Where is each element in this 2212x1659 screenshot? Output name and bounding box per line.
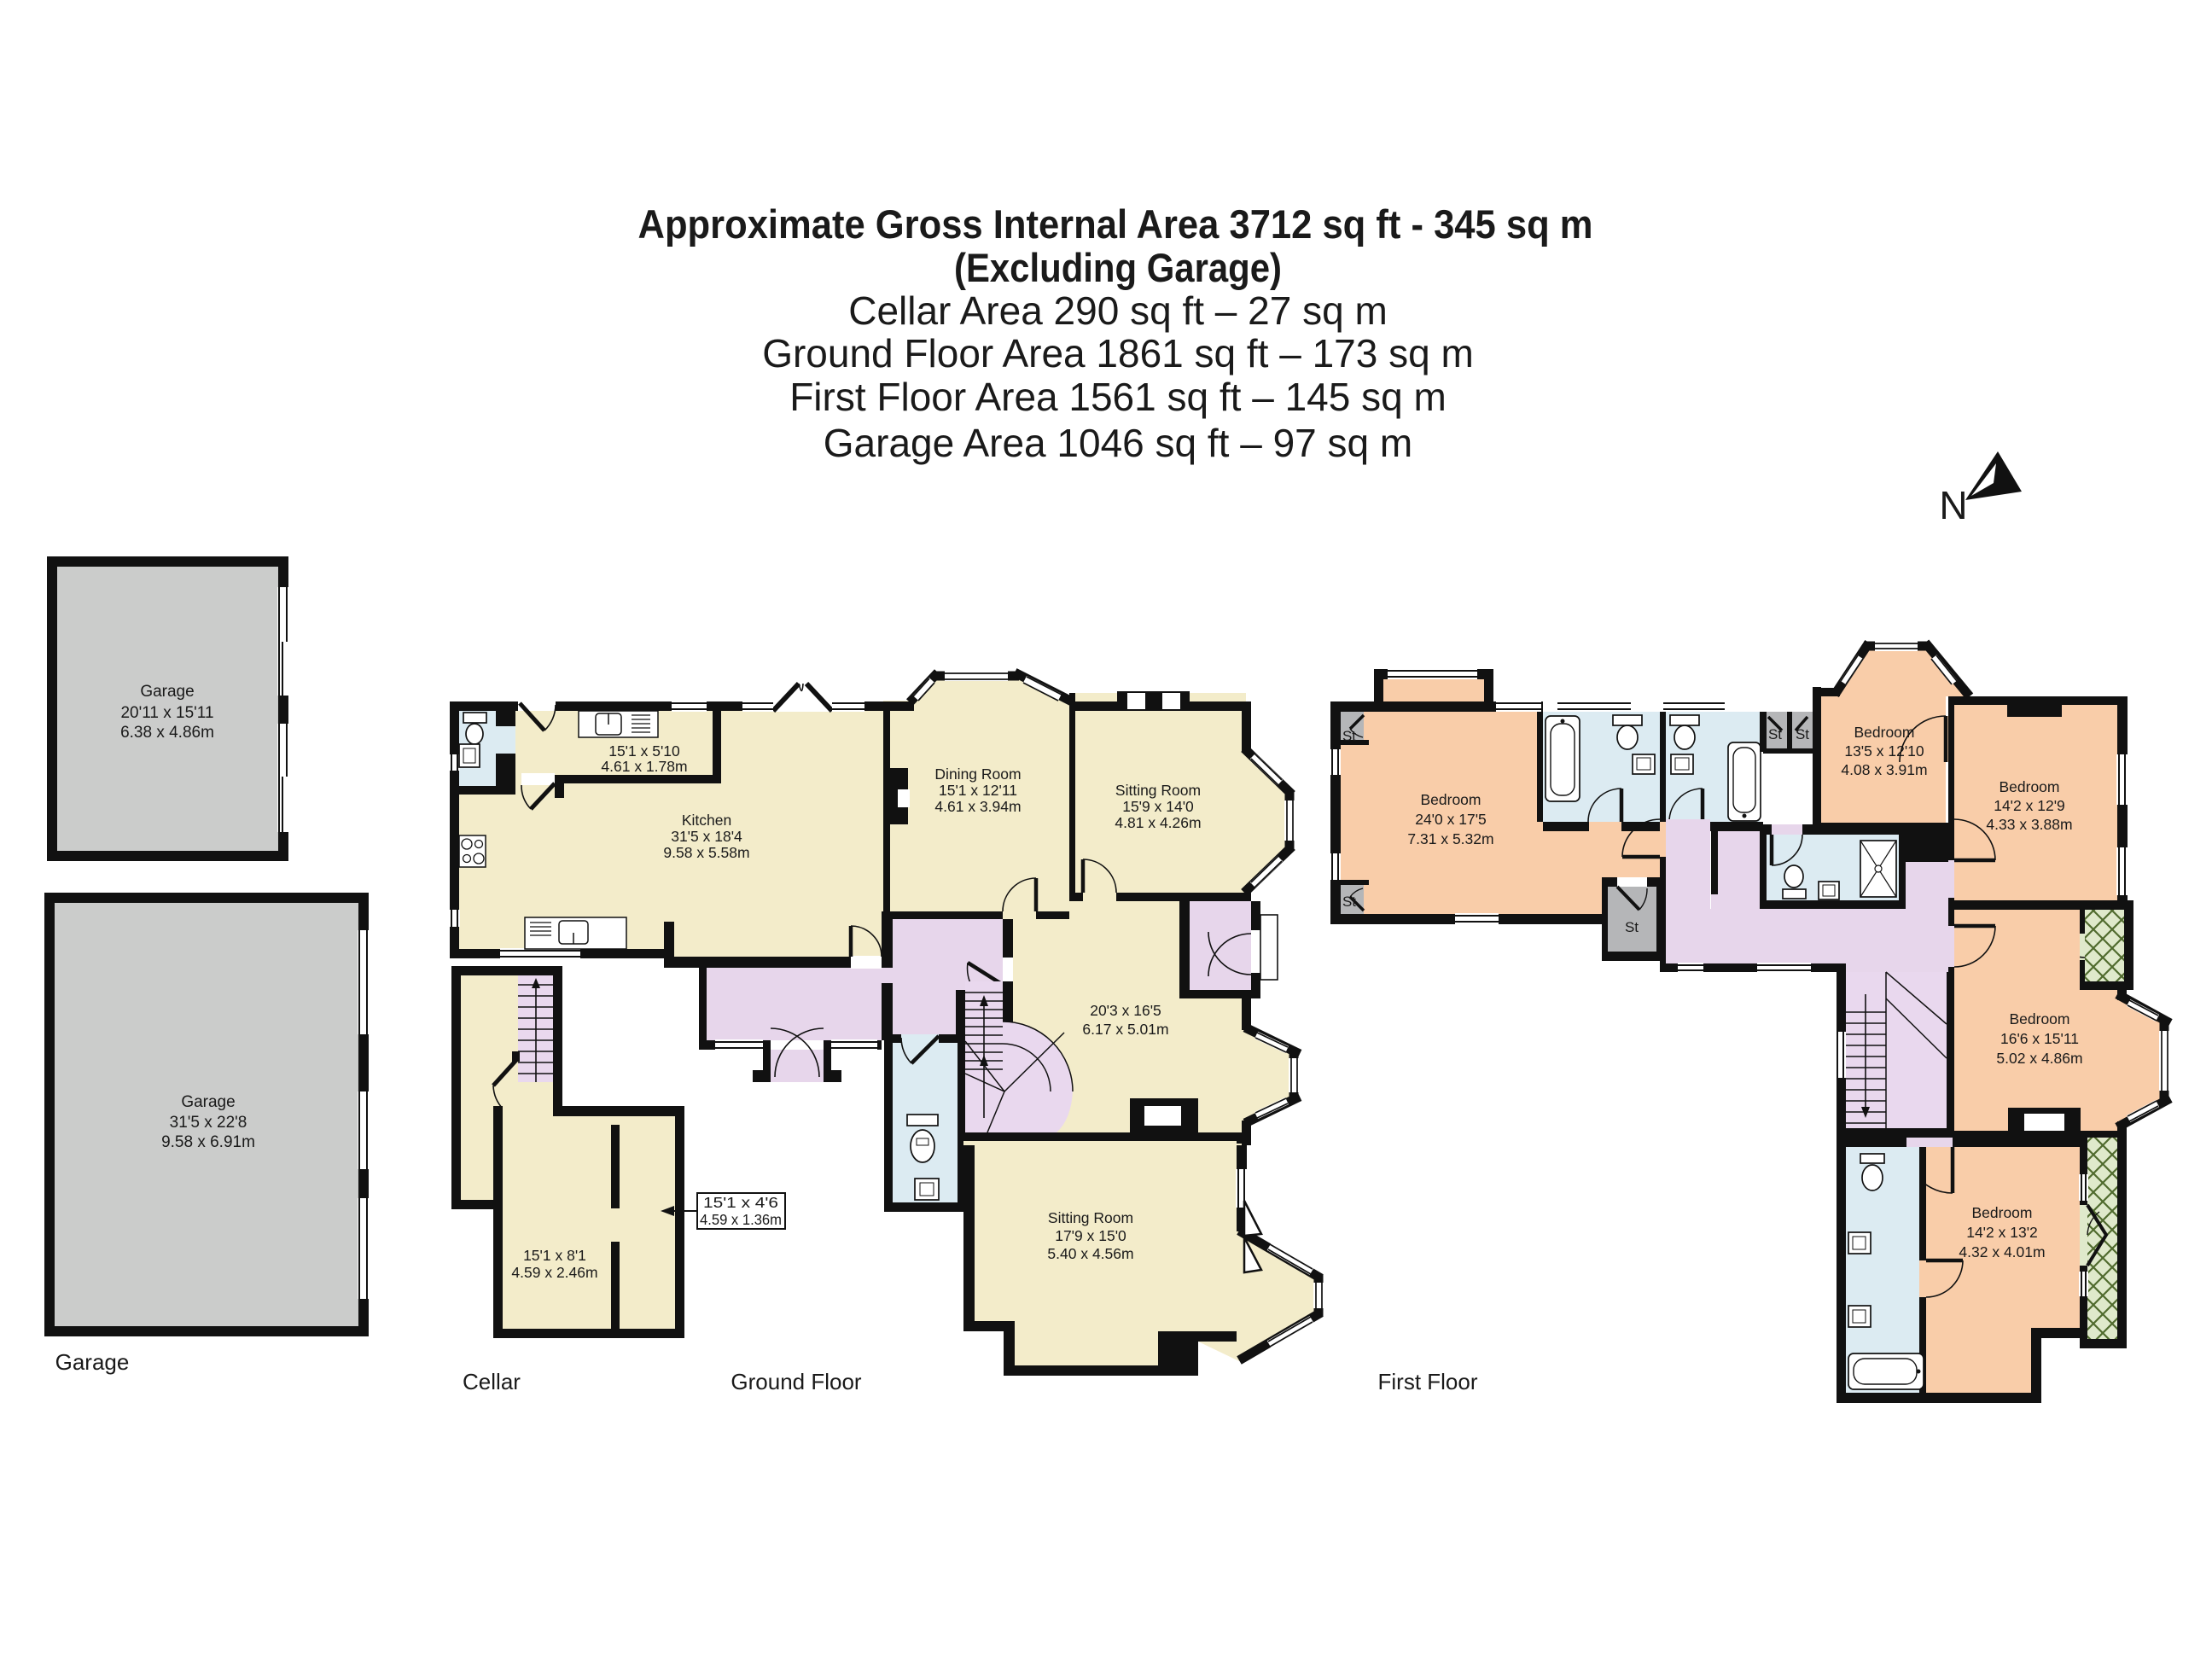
svg-text:24'0 x 17'5: 24'0 x 17'5 — [1415, 811, 1487, 828]
svg-text:Approximate Gross Internal Are: Approximate Gross Internal Area 3712 sq … — [638, 201, 1593, 247]
svg-text:St: St — [1342, 728, 1356, 744]
svg-text:Garage: Garage — [55, 1349, 130, 1375]
svg-text:Bedroom: Bedroom — [1971, 1204, 2032, 1221]
svg-text:First Floor Area 1561 sq ft –: First Floor Area 1561 sq ft – 145 sq m — [789, 375, 1447, 419]
svg-text:4.08 x 3.91m: 4.08 x 3.91m — [1841, 761, 1927, 778]
svg-text:31'5 x 18'4: 31'5 x 18'4 — [671, 828, 742, 845]
svg-text:Ground Floor Area 1861 sq ft –: Ground Floor Area 1861 sq ft – 173 sq m — [762, 331, 1474, 375]
svg-text:Bedroom: Bedroom — [1999, 778, 2059, 795]
svg-text:Bedroom: Bedroom — [1420, 791, 1481, 808]
svg-text:5.02 x 4.86m: 5.02 x 4.86m — [1996, 1050, 2082, 1067]
svg-text:Bedroom: Bedroom — [2009, 1010, 2069, 1027]
svg-text:St: St — [1342, 894, 1356, 910]
svg-text:St: St — [1768, 726, 1782, 742]
svg-text:15'1 x 12'11: 15'1 x 12'11 — [939, 782, 1017, 799]
svg-text:13'5 x 12'10: 13'5 x 12'10 — [1844, 742, 1924, 760]
svg-text:15'1 x 4'6: 15'1 x 4'6 — [703, 1194, 778, 1211]
svg-text:Cellar: Cellar — [463, 1369, 521, 1394]
svg-text:14'2 x 12'9: 14'2 x 12'9 — [1994, 797, 2065, 814]
svg-text:(Excluding Garage): (Excluding Garage) — [954, 245, 1282, 290]
svg-text:N: N — [1939, 483, 1967, 527]
svg-text:First Floor: First Floor — [1378, 1369, 1478, 1394]
svg-text:20'3 x 16'5: 20'3 x 16'5 — [1090, 1002, 1161, 1019]
svg-text:Garage: Garage — [181, 1093, 235, 1111]
svg-text:4.81 x 4.26m: 4.81 x 4.26m — [1115, 814, 1201, 831]
svg-text:15'1 x 8'1: 15'1 x 8'1 — [523, 1247, 586, 1264]
svg-text:14'2 x 13'2: 14'2 x 13'2 — [1966, 1224, 2038, 1241]
svg-text:9.58 x 5.58m: 9.58 x 5.58m — [663, 844, 749, 861]
svg-text:4.33 x 3.88m: 4.33 x 3.88m — [1986, 816, 2072, 833]
svg-text:15'1 x 5'10: 15'1 x 5'10 — [608, 742, 680, 760]
svg-text:4.59 x 1.36m: 4.59 x 1.36m — [700, 1211, 782, 1228]
svg-text:Kitchen: Kitchen — [682, 812, 731, 829]
svg-text:Garage Area 1046 sq ft – 97 sq: Garage Area 1046 sq ft – 97 sq m — [824, 421, 1412, 465]
svg-text:6.38 x 4.86m: 6.38 x 4.86m — [120, 724, 214, 742]
svg-text:4.32 x 4.01m: 4.32 x 4.01m — [1959, 1243, 2045, 1260]
svg-text:16'6 x 15'11: 16'6 x 15'11 — [2000, 1030, 2079, 1047]
svg-text:4.59 x 2.46m: 4.59 x 2.46m — [511, 1264, 597, 1281]
svg-text:Ground Floor: Ground Floor — [731, 1369, 862, 1394]
svg-text:Cellar Area 290 sq ft – 27 sq: Cellar Area 290 sq ft – 27 sq m — [848, 288, 1388, 333]
svg-text:St: St — [1625, 919, 1639, 935]
svg-text:17'9 x 15'0: 17'9 x 15'0 — [1055, 1227, 1126, 1244]
svg-text:Garage: Garage — [140, 683, 194, 701]
svg-text:7.31 x 5.32m: 7.31 x 5.32m — [1407, 830, 1493, 847]
svg-text:6.17 x 5.01m: 6.17 x 5.01m — [1082, 1021, 1168, 1038]
svg-text:St: St — [1796, 726, 1809, 742]
svg-text:15'9 x 14'0: 15'9 x 14'0 — [1122, 798, 1194, 815]
svg-text:20'11 x 15'11: 20'11 x 15'11 — [120, 704, 213, 722]
svg-text:5.40 x 4.56m: 5.40 x 4.56m — [1047, 1245, 1133, 1262]
svg-text:4.61 x 3.94m: 4.61 x 3.94m — [934, 798, 1021, 815]
svg-text:Sitting Room: Sitting Room — [1048, 1209, 1133, 1226]
svg-text:Dining Room: Dining Room — [934, 765, 1021, 783]
svg-text:Sitting Room: Sitting Room — [1115, 782, 1201, 799]
svg-text:31'5 x 22'8: 31'5 x 22'8 — [170, 1114, 247, 1132]
svg-text:4.61 x 1.78m: 4.61 x 1.78m — [601, 758, 687, 775]
svg-text:9.58 x 6.91m: 9.58 x 6.91m — [161, 1133, 255, 1151]
